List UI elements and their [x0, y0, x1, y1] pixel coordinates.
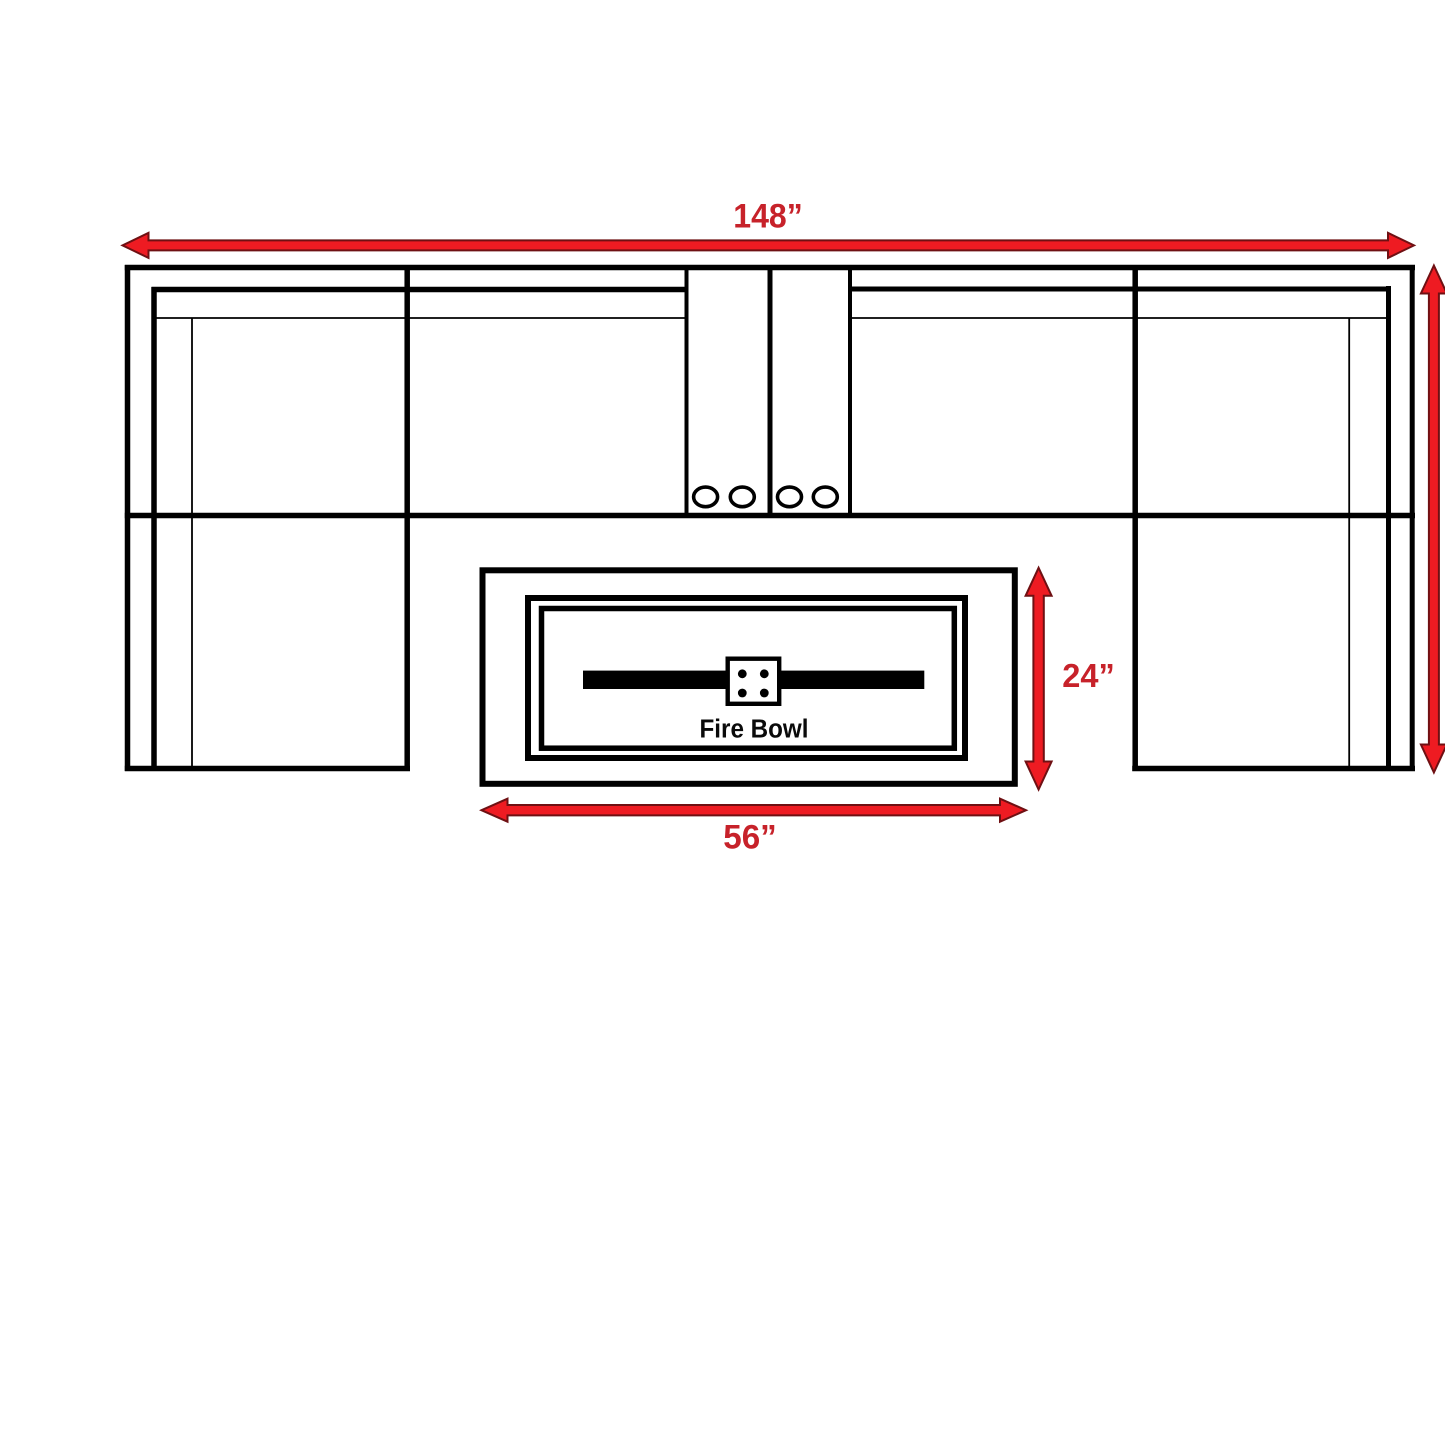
svg-text:Fire Bowl: Fire Bowl	[700, 716, 809, 744]
svg-text:56”: 56”	[723, 819, 777, 857]
svg-text:24”: 24”	[1062, 657, 1115, 694]
svg-text:148”: 148”	[733, 197, 803, 235]
